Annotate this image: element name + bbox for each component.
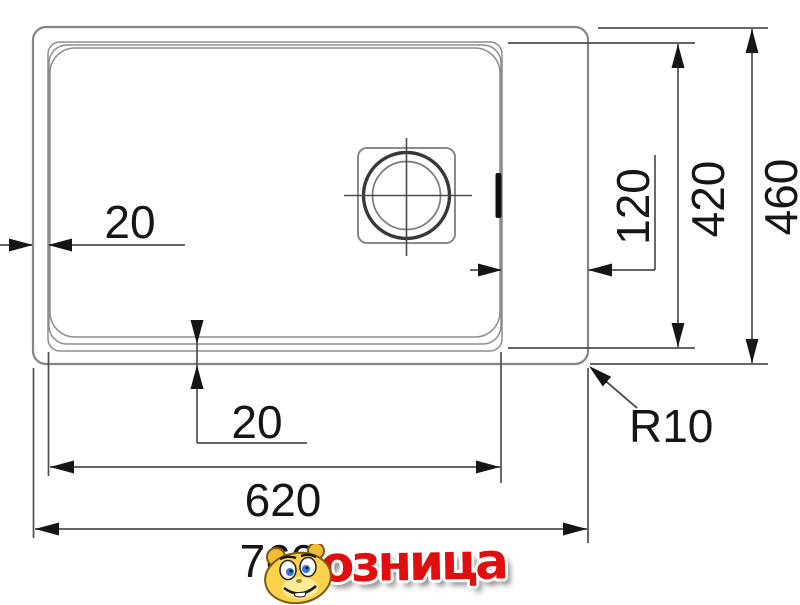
dim-bowl-depth-label: 420 [682, 161, 734, 238]
bowl-outline-3 [50, 48, 500, 337]
arrowhead-left-icon [48, 239, 72, 252]
dim-rim-left-label: 20 [104, 196, 155, 248]
bowl-outline-2 [49, 45, 501, 344]
dim-bowl-length-label: 620 [245, 474, 322, 526]
dim-corner-radius: R10 [589, 366, 713, 452]
drain-assembly [344, 138, 472, 256]
arrowhead-up-icon [672, 44, 685, 68]
arrowhead-left-icon [50, 461, 74, 474]
arrowhead-right-icon [476, 461, 500, 474]
arrowhead-down-icon [191, 320, 204, 344]
dim-overall-depth-label: 460 [755, 159, 800, 236]
overflow-mark [496, 173, 502, 218]
arrowhead-up-icon [746, 29, 759, 53]
dim-rim-bottom: 20 [191, 320, 308, 448]
dim-overall-length-label: 760 [240, 535, 317, 587]
arrowhead-right-icon [563, 523, 587, 536]
dim-corner-radius-label: R10 [629, 400, 713, 452]
arrowhead-up-icon [191, 365, 204, 389]
dim-right-offset-label: 120 [607, 168, 659, 245]
dim-rim-bottom-label: 20 [231, 396, 282, 448]
arrowhead-right-icon [478, 264, 502, 277]
arrowhead-left-icon [35, 523, 59, 536]
arrowhead-down-icon [672, 323, 685, 347]
sink-technical-drawing: 20 120 420 460 20 [0, 0, 800, 600]
arrowhead-left-icon [588, 264, 612, 277]
drawing-canvas: 20 120 420 460 20 [0, 0, 800, 600]
arrowhead-right-icon [9, 239, 33, 252]
dim-rim-left: 20 [0, 196, 185, 252]
arrowhead-down-icon [746, 339, 759, 363]
